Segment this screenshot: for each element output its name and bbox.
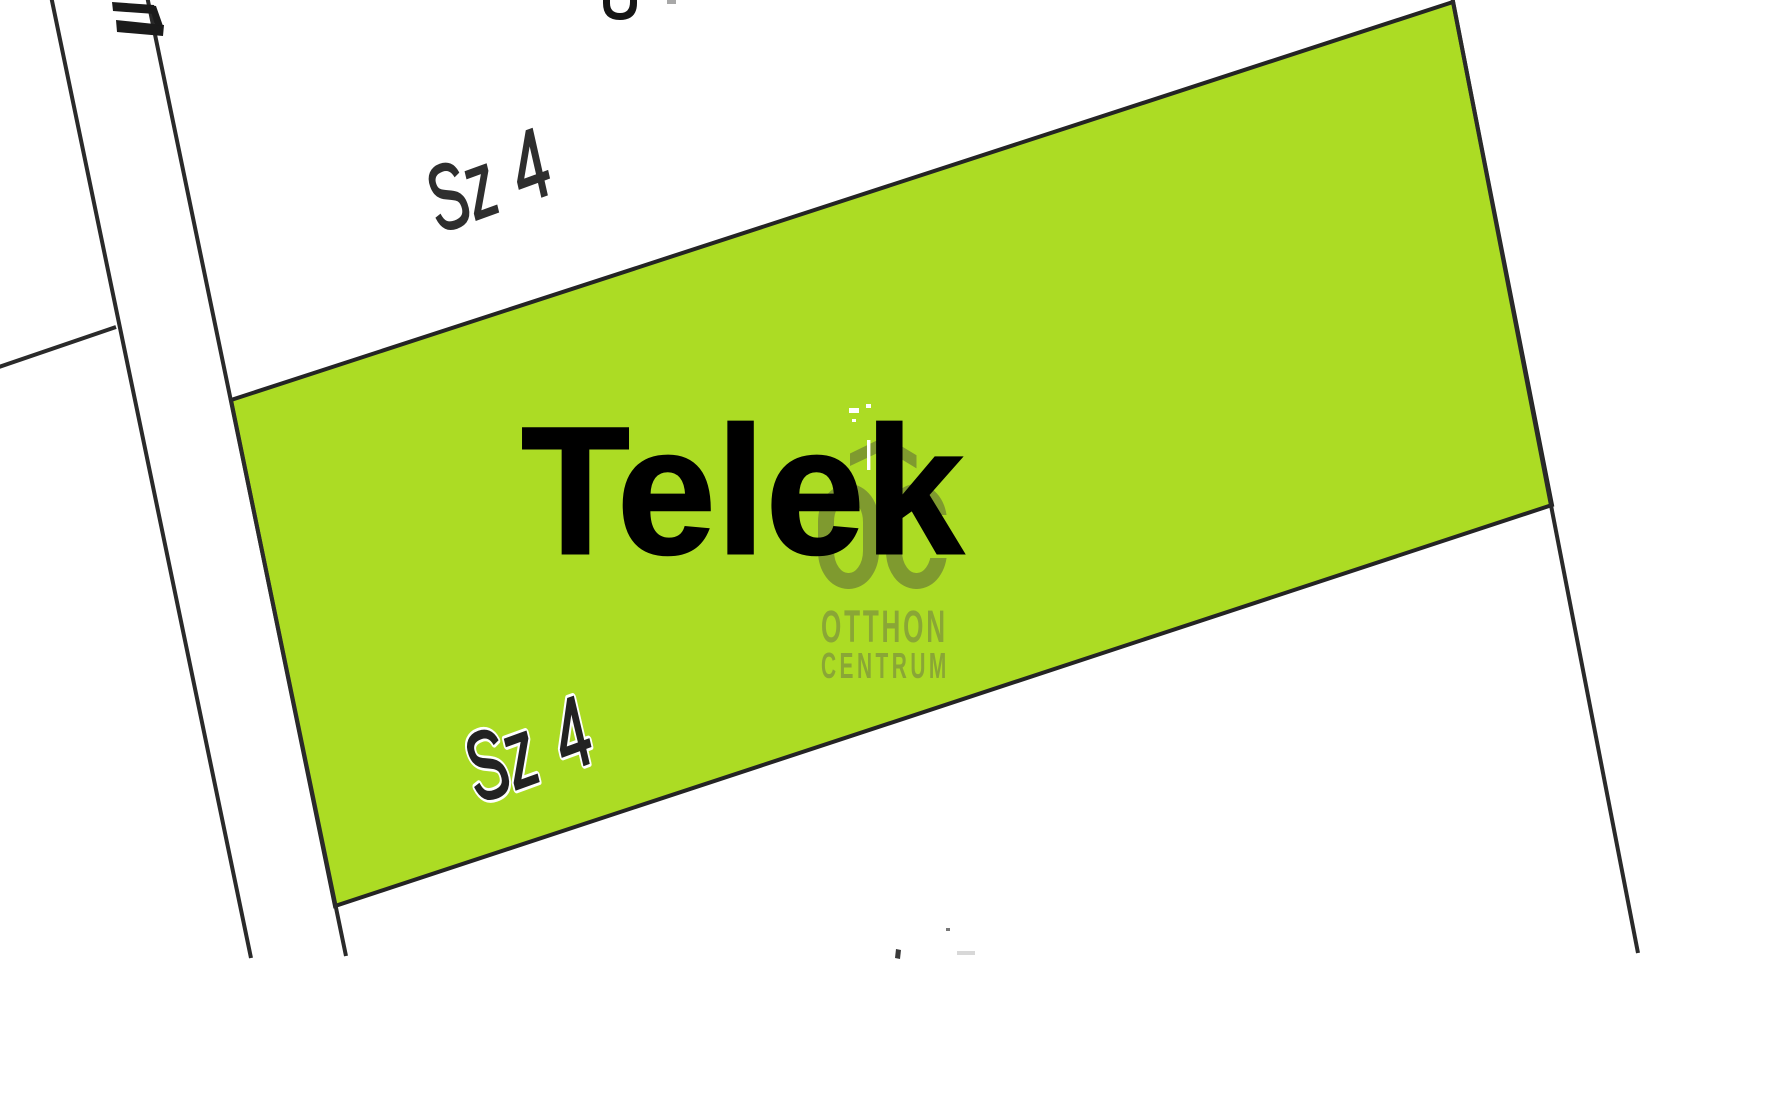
svg-text:OTTHON: OTTHON <box>821 602 945 652</box>
svg-text:Telek: Telek <box>521 390 965 593</box>
